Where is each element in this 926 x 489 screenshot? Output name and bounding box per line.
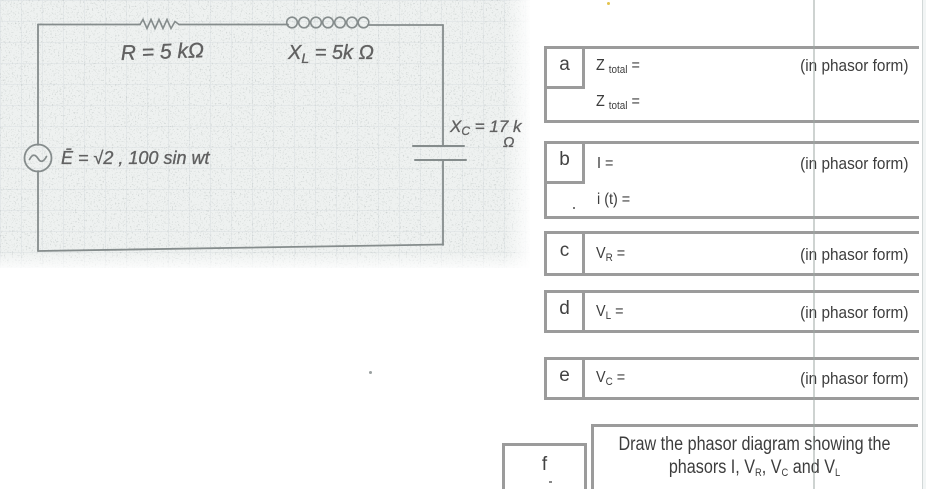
svg-text:Ē = √2 , 100 sin wt: Ē = √2 , 100 sin wt <box>61 148 210 168</box>
svg-text:R = 5 kΩ: R = 5 kΩ <box>120 39 204 65</box>
svg-text:Ω: Ω <box>503 134 514 151</box>
svg-text:XL = 5k Ω: XL = 5k Ω <box>287 42 374 66</box>
